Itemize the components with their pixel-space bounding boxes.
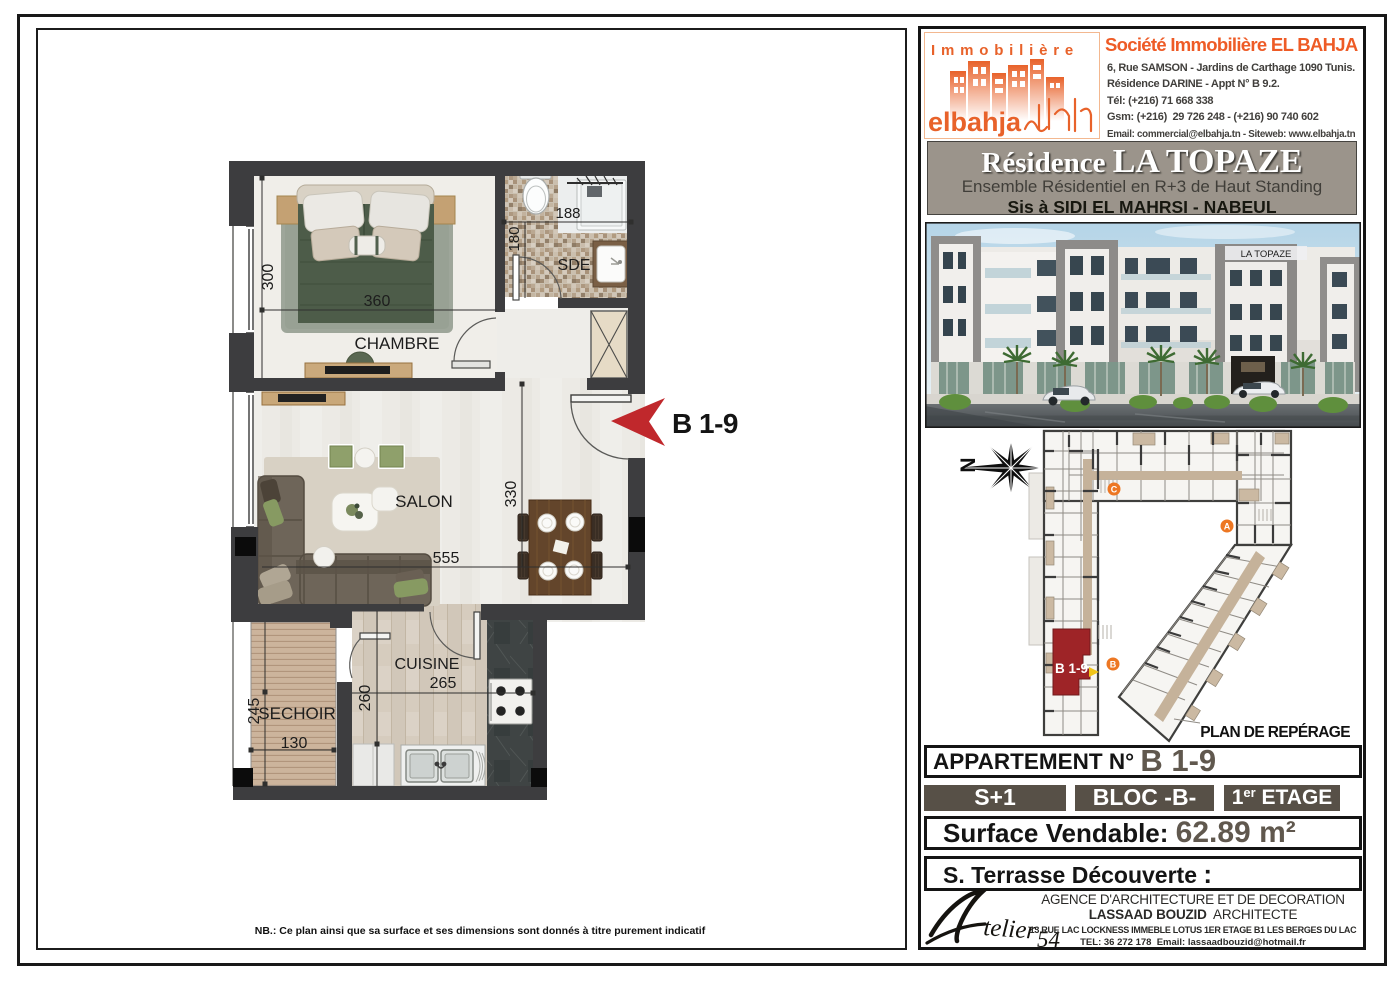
svg-text:SDE: SDE <box>558 257 591 274</box>
svg-text:A: A <box>1224 522 1231 532</box>
svg-text:LA TOPAZE: LA TOPAZE <box>1241 249 1292 260</box>
svg-text:265: 265 <box>430 675 457 692</box>
svg-text:B 1-9: B 1-9 <box>1055 661 1088 676</box>
svg-text:180: 180 <box>506 226 523 251</box>
svg-text:260: 260 <box>357 685 374 712</box>
svg-text:245: 245 <box>246 698 263 725</box>
svg-text:330: 330 <box>503 481 520 508</box>
svg-text:B 1-9: B 1-9 <box>672 408 738 439</box>
svg-text:130: 130 <box>281 735 308 752</box>
svg-text:300: 300 <box>260 264 277 291</box>
svg-text:CHAMBRE: CHAMBRE <box>354 334 439 353</box>
svg-text:SECHOIR: SECHOIR <box>258 704 335 723</box>
svg-text:PLAN DE REPÉRAGE: PLAN DE REPÉRAGE <box>1200 724 1350 741</box>
svg-text:C: C <box>1111 485 1118 495</box>
svg-text:188: 188 <box>555 205 580 222</box>
svg-text:SALON: SALON <box>395 492 453 511</box>
svg-text:B: B <box>1110 660 1117 670</box>
svg-text:CUISINE: CUISINE <box>395 656 460 673</box>
svg-text:elbahja: elbahja <box>928 107 1022 137</box>
svg-text:360: 360 <box>364 293 391 310</box>
svg-text:N: N <box>957 457 980 472</box>
svg-text:555: 555 <box>433 550 460 567</box>
